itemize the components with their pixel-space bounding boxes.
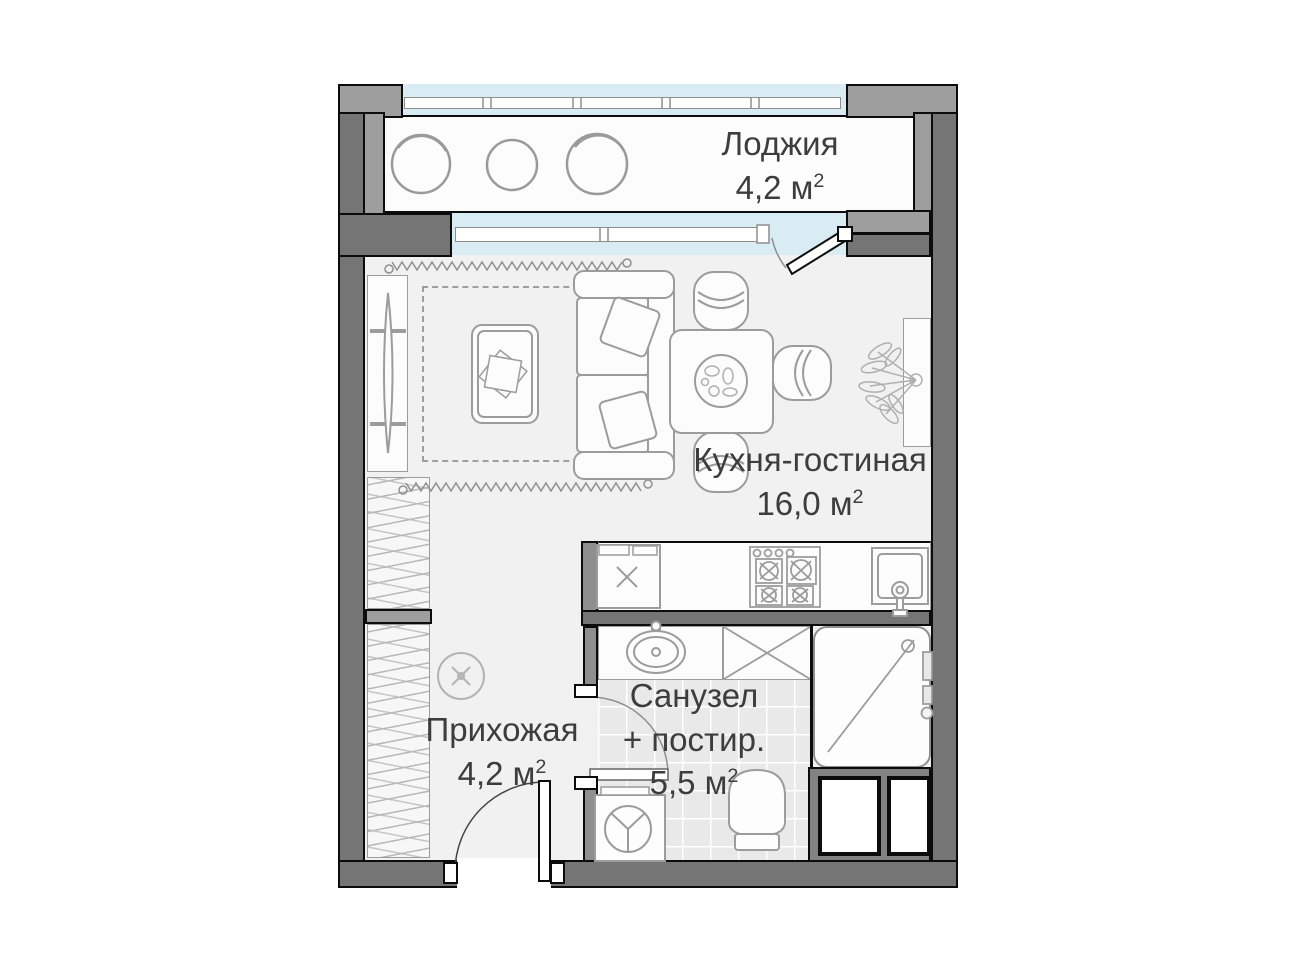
room-area: 5,5 м2: [594, 761, 794, 805]
area-sup: 2: [813, 170, 824, 192]
room-label-bathroom: Санузел + постир. 5,5 м2: [594, 674, 794, 805]
room-name: Лоджия: [640, 122, 920, 166]
entrance-door-leaf: [538, 780, 551, 882]
area-value: 16,0 м: [756, 485, 852, 522]
floor-plan: Лоджия 4,2 м2 Кухня-гостиная 16,0 м2 Сан…: [0, 0, 1300, 975]
room-area: 4,2 м2: [640, 166, 920, 210]
room-label-kitchen-living: Кухня-гостиная 16,0 м2: [660, 438, 960, 525]
entrance-jamb-right: [550, 862, 565, 884]
sofa-icon: [574, 271, 674, 479]
area-value: 5,5 м: [650, 764, 728, 801]
bath-sink-icon: [627, 622, 685, 674]
chair-icon: [773, 346, 831, 400]
entrance-door-icon: [455, 782, 545, 872]
room-name: Прихожая: [392, 708, 612, 752]
area-value: 4,2 м: [736, 169, 814, 206]
room-name-line2: + постир.: [594, 718, 794, 762]
room-area: 4,2 м2: [392, 752, 612, 796]
stove-icon: [750, 547, 820, 607]
linen-cabinet-icon: [724, 627, 810, 679]
room-name: Санузел: [594, 674, 794, 718]
loggia-pouf-icon: [392, 134, 627, 194]
plant-icon: [859, 340, 922, 426]
tv-icon: [370, 293, 406, 453]
shower-icon: [828, 640, 933, 752]
area-sup: 2: [853, 486, 864, 508]
kitchen-sink-icon: [872, 548, 928, 616]
room-name: Кухня-гостиная: [660, 438, 960, 482]
ceiling-light-icon: [438, 653, 484, 699]
room-label-loggia: Лоджия 4,2 м2: [640, 122, 920, 209]
chair-icon: [694, 272, 748, 330]
area-sup: 2: [535, 756, 546, 778]
loggia-door-icon: [772, 227, 852, 274]
area-sup: 2: [727, 765, 738, 787]
room-area: 16,0 м2: [660, 482, 960, 526]
entrance-jamb-left: [443, 862, 458, 884]
fridge-icon: [597, 545, 660, 608]
area-value: 4,2 м: [458, 755, 536, 792]
room-label-hallway: Прихожая 4,2 м2: [392, 708, 612, 795]
coffee-table-icon: [472, 325, 538, 423]
